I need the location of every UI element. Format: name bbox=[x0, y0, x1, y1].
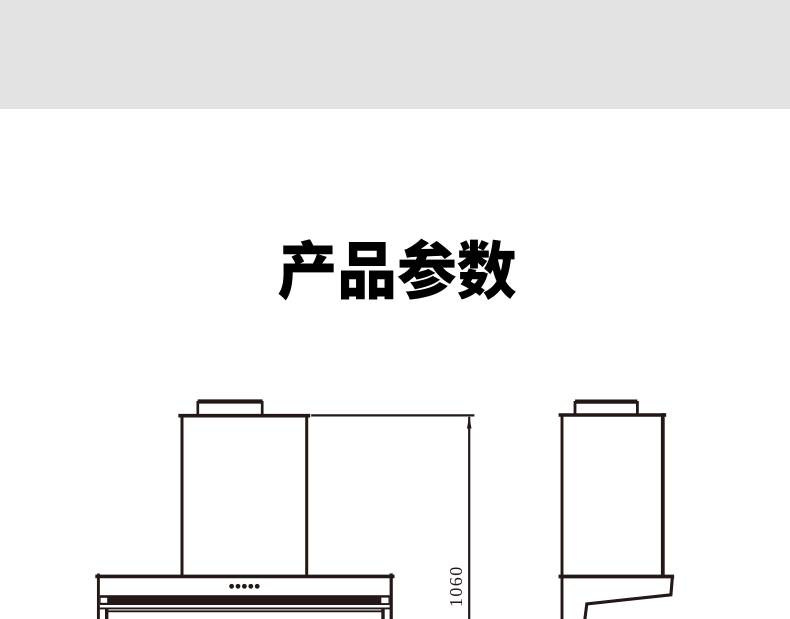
svg-text:1060: 1060 bbox=[446, 565, 466, 607]
